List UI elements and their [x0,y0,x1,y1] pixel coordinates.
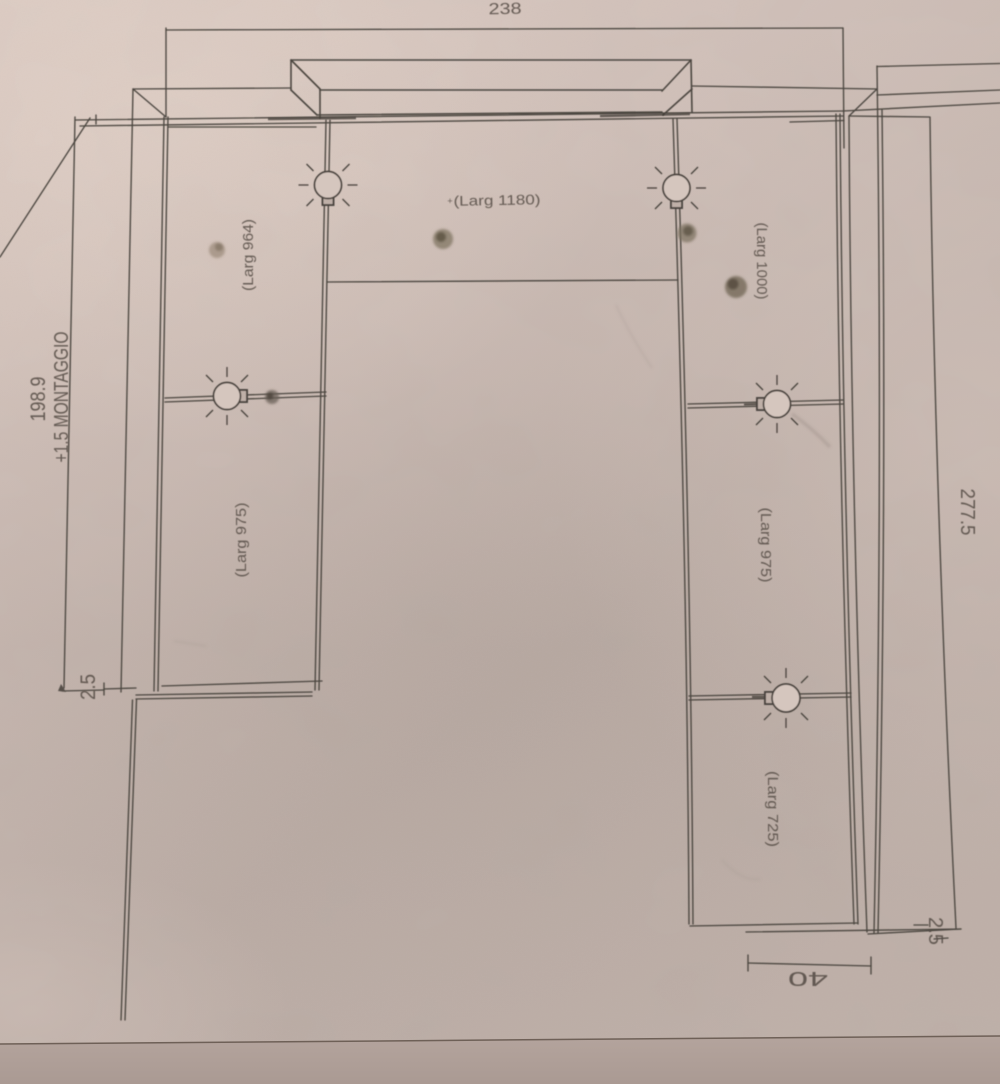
svg-text:238: 238 [488,1,521,19]
svg-text:277.5: 277.5 [956,489,978,536]
svg-text:198.9: 198.9 [27,377,50,422]
svg-text:(Larg 975): (Larg 975) [234,503,250,578]
svg-text:40: 40 [788,967,828,989]
svg-text:2.5: 2.5 [77,674,100,700]
svg-text:2.5: 2.5 [924,917,946,945]
svg-text:(Larg 1000): (Larg 1000) [753,223,769,300]
svg-text:(Larg 725): (Larg 725) [764,771,780,847]
svg-text:+1.5 MONTAGGIO: +1.5 MONTAGGIO [51,332,73,463]
svg-text:(Larg 964): (Larg 964) [241,219,257,291]
svg-text:(Larg 1180): (Larg 1180) [453,191,540,209]
svg-text:+: + [447,196,452,206]
svg-text:(Larg 975): (Larg 975) [757,508,773,583]
